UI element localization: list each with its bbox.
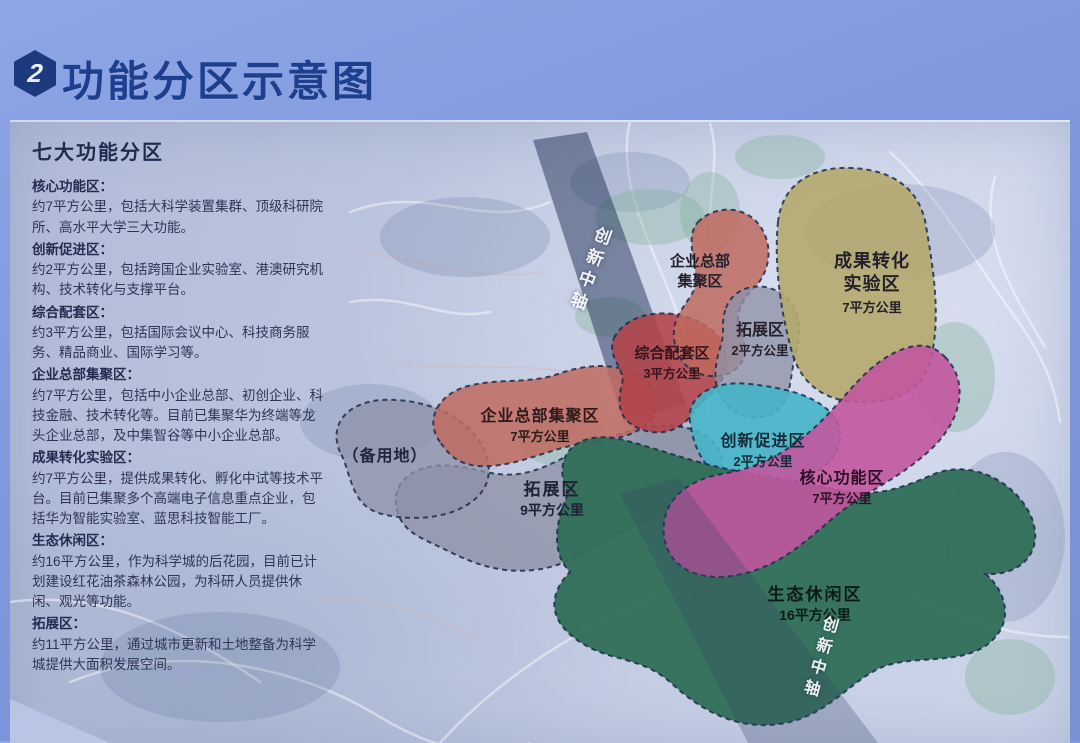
- zone-label-reserved-land: （备用地）: [342, 442, 427, 466]
- zone-label-hq-main: 企业总部集聚区 7平方公里: [480, 402, 599, 445]
- legend-item: 综合配套区： 约3平方公里，包括国际会议中心、科技商务服务、精品商业、国际学习等…: [32, 303, 328, 364]
- zone-label-hq-top: 企业总部 集聚区: [670, 252, 730, 293]
- zone-label-eco: 生态休闲区 16平方公里: [768, 580, 863, 625]
- legend-item: 生态休闲区： 约16平方公里，作为科学城的后花园，目前已计划建设红花油茶森林公园…: [32, 531, 328, 612]
- page-header: 2 功能分区示意图: [0, 0, 1080, 120]
- legend-item: 拓展区： 约11平方公里，通过城市更新和土地整备为科学城提供大面积发展空间。: [32, 614, 328, 675]
- zone-label-core: 核心功能区 7平方公里: [799, 464, 884, 507]
- zone-label-composite: 综合配套区 3平方公里: [634, 342, 709, 382]
- zone-label-expansion-2: 拓展区 2平方公里: [732, 316, 789, 359]
- legend-item: 成果转化实验区： 约7平方公里，提供成果转化、孵化中试等技术平台。目前已集聚多个…: [32, 448, 328, 529]
- zoning-map-board: 七大功能分区 核心功能区： 约7平方公里，包括大科学装置集群、顶级科研院所、高水…: [10, 120, 1070, 743]
- legend-panel: 七大功能分区 核心功能区： 约7平方公里，包括大科学装置集群、顶级科研院所、高水…: [32, 136, 328, 677]
- zone-label-achievement: 成果转化 实验区 7平方公里: [834, 250, 910, 316]
- legend-item: 企业总部集聚区： 约7平方公里，包括中小企业总部、初创企业、科技金融、技术转化等…: [32, 365, 328, 446]
- legend-item: 创新促进区： 约2平方公里，包括跨国企业实验室、港澳研究机构、技术转化与支撑平台…: [32, 240, 328, 301]
- zone-label-innovation: 创新促进区 2平方公里: [720, 427, 805, 470]
- legend-title: 七大功能分区: [32, 136, 328, 165]
- zone-label-expansion-9: 拓展区 9平方公里: [520, 475, 584, 520]
- photo-edge-corner: [10, 699, 110, 743]
- page-title: 功能分区示意图: [62, 48, 377, 109]
- section-number: 2: [26, 58, 44, 89]
- legend-item: 核心功能区： 约7平方公里，包括大科学装置集群、顶级科研院所、高水平大学三大功能…: [32, 177, 328, 238]
- section-number-badge: 2: [14, 50, 56, 97]
